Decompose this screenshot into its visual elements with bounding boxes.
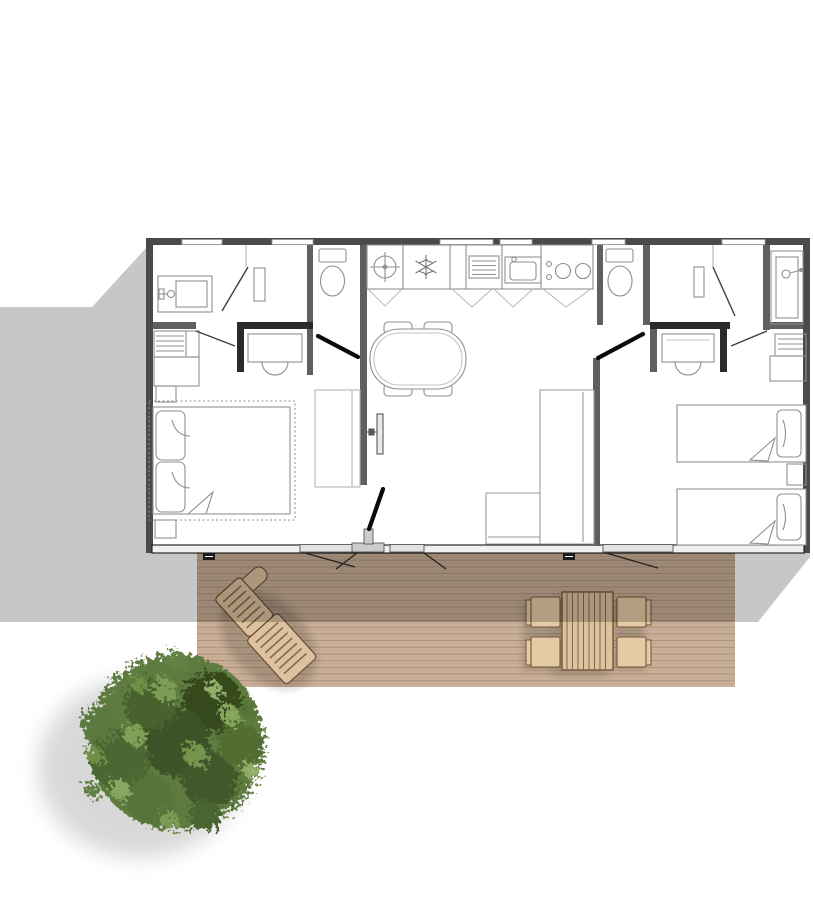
- dining-set: [370, 322, 466, 396]
- window: [272, 240, 313, 245]
- wall-vanity-right-side: [650, 322, 657, 372]
- floor-plan-scene: [0, 0, 813, 900]
- twin-bed-1: [677, 405, 806, 462]
- window: [182, 240, 222, 245]
- nook-left-side: [237, 322, 244, 372]
- nook-right-side: [720, 322, 727, 372]
- wall-wc-left: [307, 245, 313, 375]
- floor-plan-svg: [0, 0, 813, 900]
- wall-master-living: [360, 245, 367, 485]
- building: [146, 238, 810, 553]
- threshold-master: [300, 545, 357, 553]
- twin-bed-2: [677, 489, 806, 545]
- wall-wc-right-b: [643, 245, 650, 325]
- door-post: [364, 529, 373, 544]
- tree: [38, 650, 264, 858]
- threshold-living: [390, 545, 424, 553]
- wall-wc-right-a: [597, 245, 603, 325]
- master-bed: [149, 401, 295, 520]
- nook-right-top: [650, 322, 730, 329]
- wall-suite-left-a: [153, 322, 196, 329]
- window: [722, 240, 765, 245]
- threshold-bedroom2: [603, 545, 673, 553]
- nook-left-top: [237, 322, 313, 329]
- window: [592, 240, 625, 245]
- patio-chair: [617, 637, 651, 667]
- wall-bathroom-right: [763, 245, 770, 330]
- window: [500, 240, 532, 245]
- bottom-wall: [152, 545, 804, 553]
- window: [440, 240, 493, 245]
- wall-suite-right-b: [767, 322, 803, 329]
- patio-chair: [526, 637, 560, 667]
